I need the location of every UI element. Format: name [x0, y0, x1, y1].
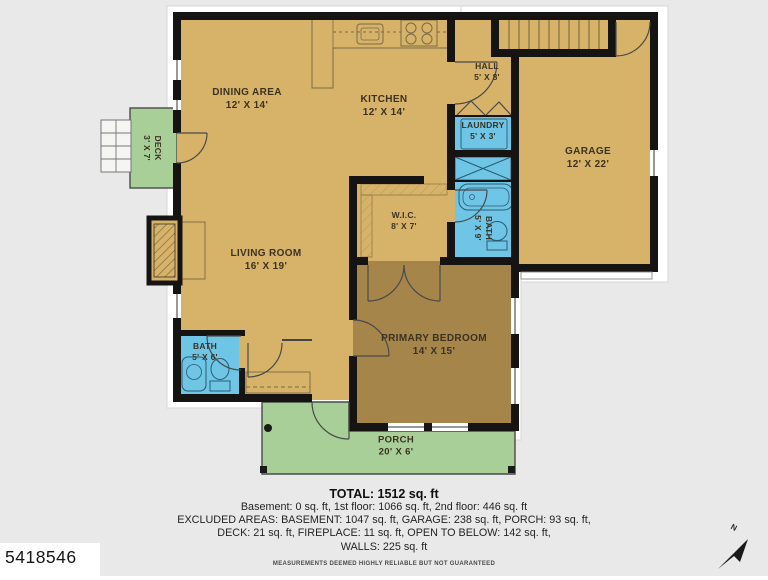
room-name: GARAGE [565, 146, 611, 157]
room-name: BATH [484, 216, 494, 240]
room-label-living: LIVING ROOM 16' X 19' [230, 247, 301, 273]
floor-plan-page: DINING AREA 12' X 14' KITCHEN 12' X 14' … [0, 0, 768, 576]
room-name: DECK [153, 135, 163, 160]
room-name: LAUNDRY [462, 120, 505, 130]
room-dims: 12' X 22' [565, 158, 611, 171]
excluded-areas-line2: DECK: 21 sq. ft, FIREPLACE: 11 sq. ft, O… [0, 527, 768, 540]
room-name: PRIMARY BEDROOM [381, 333, 487, 344]
room-dims: 5' X 3' [462, 131, 505, 142]
room-dims: 14' X 15' [381, 345, 487, 358]
room-name: DINING AREA [212, 87, 282, 98]
floors-breakdown: Basement: 0 sq. ft, 1st floor: 1066 sq. … [0, 501, 768, 514]
total-area: TOTAL: 1512 sq. ft [0, 487, 768, 501]
room-label-laundry: LAUNDRY 5' X 3' [462, 120, 505, 142]
room-name: BATH [193, 341, 217, 351]
room-label-hall: HALL 5' X 8' [474, 61, 500, 83]
room-name: PORCH [378, 435, 414, 446]
area-summary: TOTAL: 1512 sq. ft Basement: 0 sq. ft, 1… [0, 487, 768, 567]
room-dims: 20' X 6' [378, 447, 414, 459]
garage-door [521, 272, 652, 279]
room-label-garage: GARAGE 12' X 22' [565, 145, 611, 171]
room-dims: 5' X 8' [474, 72, 500, 83]
room-dims: 16' X 19' [230, 260, 301, 273]
room-dims: 12' X 14' [212, 99, 282, 112]
walls-area: WALLS: 225 sq. ft [0, 541, 768, 554]
compass: N [700, 515, 766, 575]
room-label-deck: DECK 3' X 7' [141, 135, 163, 161]
room-label-porch: PORCH 20' X 6' [378, 435, 414, 460]
room-label-bath-upper: BATH 5' X 9' [472, 215, 494, 241]
room-dims: 12' X 14' [361, 106, 408, 119]
room-name: W.I.C. [392, 210, 417, 220]
staircase [499, 20, 608, 49]
room-label-kitchen: KITCHEN 12' X 14' [361, 93, 408, 119]
excluded-areas-line1: EXCLUDED AREAS: BASEMENT: 1047 sq. ft, G… [0, 514, 768, 527]
room-dims: 3' X 7' [141, 135, 152, 161]
room-label-dining: DINING AREA 12' X 14' [212, 86, 282, 112]
disclaimer: MEASUREMENTS DEEMED HIGHLY RELIABLE BUT … [0, 561, 768, 567]
room-dims: 5' X 9' [472, 215, 483, 241]
room-name: KITCHEN [361, 94, 408, 105]
fireplace [149, 218, 205, 283]
room-name: LIVING ROOM [230, 248, 301, 259]
room-dims: 8' X 7' [391, 221, 417, 232]
listing-id: 5418546 [5, 547, 77, 568]
room-dims: 5' X 6' [192, 352, 218, 363]
deck-area [101, 108, 177, 188]
room-name: HALL [475, 61, 499, 71]
room-label-primary-bedroom: PRIMARY BEDROOM 14' X 15' [381, 332, 487, 358]
room-label-bath-lower: BATH 5' X 6' [192, 341, 218, 363]
room-label-wic: W.I.C. 8' X 7' [391, 210, 417, 232]
